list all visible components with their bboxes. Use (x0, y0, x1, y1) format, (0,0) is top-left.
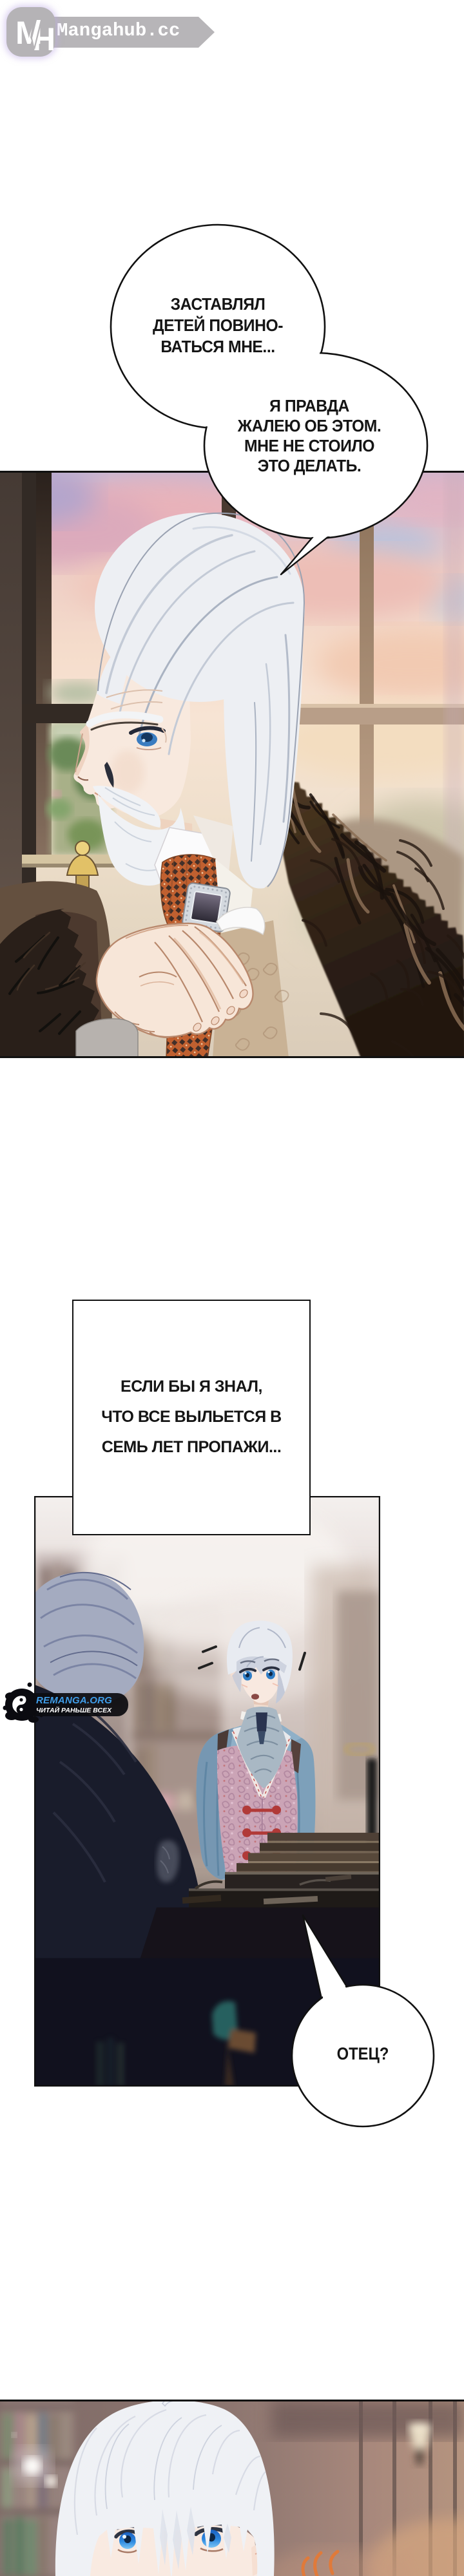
svg-text:REMANGA.ORG: REMANGA.ORG (36, 1695, 112, 1706)
svg-text:ЧИТАЙ РАНЬШЕ ВСЕХ: ЧИТАЙ РАНЬШЕ ВСЕХ (36, 1706, 112, 1714)
